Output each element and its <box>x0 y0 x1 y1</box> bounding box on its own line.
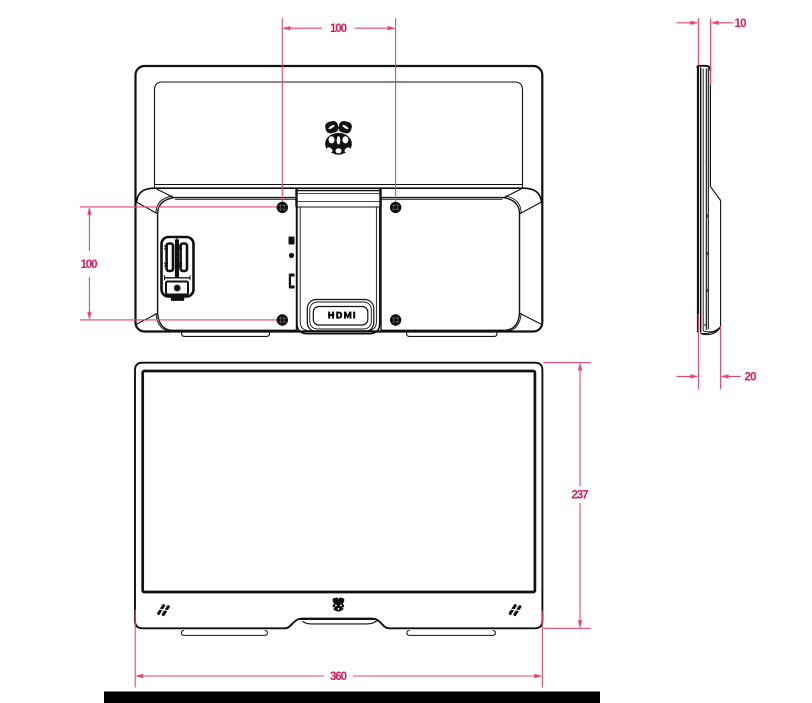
svg-text:100: 100 <box>81 259 98 271</box>
svg-text:10: 10 <box>735 18 747 30</box>
svg-text:237: 237 <box>572 490 589 502</box>
svg-text:100: 100 <box>330 23 347 35</box>
svg-text:20: 20 <box>745 371 757 383</box>
svg-text:360: 360 <box>330 671 347 683</box>
